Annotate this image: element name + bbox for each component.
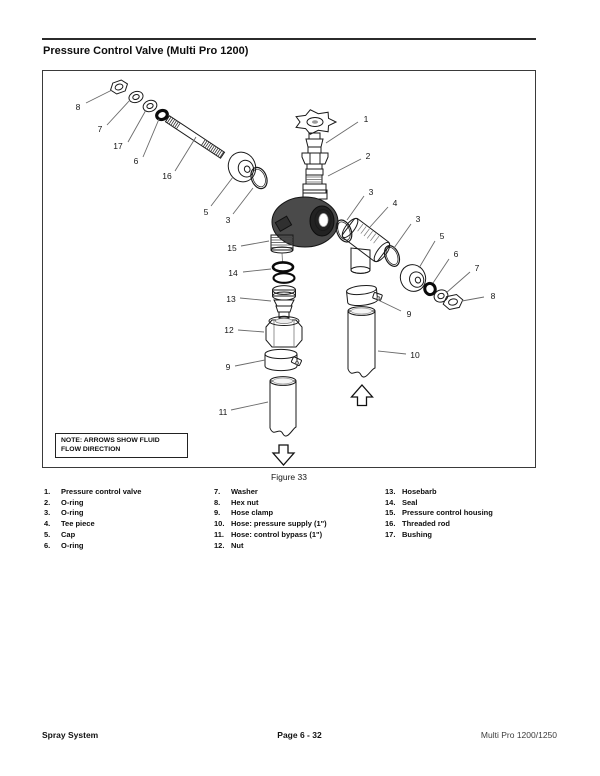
figure-caption: Figure 33 xyxy=(42,472,536,482)
callout-label: 13 xyxy=(226,294,236,304)
callout-label: 6 xyxy=(134,156,139,166)
o-ring-3-left xyxy=(248,165,270,191)
hose-pressure-supply xyxy=(348,307,375,377)
part-item: 10.Hose: pressure supply (1") xyxy=(214,519,327,530)
callout-leader-line xyxy=(211,177,233,206)
valve-coupling xyxy=(302,153,328,193)
callout-label: 6 xyxy=(454,249,459,259)
callout-leader-line xyxy=(446,272,470,293)
part-item: 2.O-ring xyxy=(44,498,141,509)
callout-leader-line xyxy=(175,137,196,171)
callout-leader-line xyxy=(238,330,264,332)
pressure-control-valve xyxy=(296,110,336,153)
tee-branch-end xyxy=(351,267,370,274)
callout-leader-line xyxy=(243,269,271,272)
callout-leader-line xyxy=(86,90,112,103)
bushing xyxy=(142,98,159,113)
callout-label: 7 xyxy=(475,263,480,273)
callout-leader-line xyxy=(433,259,449,283)
callout-label: 1 xyxy=(364,114,369,124)
cap-left xyxy=(224,148,260,186)
part-item: 16.Threaded rod xyxy=(385,519,493,530)
callout-leader-line xyxy=(347,196,364,220)
seal xyxy=(273,262,295,282)
diagram-panel: 87176165315141312911123435678910 NOTE: A… xyxy=(42,70,536,468)
callout-leader-line xyxy=(419,241,435,268)
hosebarb xyxy=(273,286,296,320)
callout-leader-line xyxy=(235,360,265,366)
callout-label: 11 xyxy=(219,407,228,417)
callout-label: 8 xyxy=(491,291,496,301)
callout-leader-line xyxy=(378,300,401,311)
callout-label: 5 xyxy=(440,231,445,241)
callout-label: 2 xyxy=(366,151,371,161)
callout-leader-line xyxy=(241,241,269,246)
part-item: 7.Washer xyxy=(214,487,327,498)
callout-leader-line xyxy=(143,119,159,157)
manual-page: Pressure Control Valve (Multi Pro 1200) xyxy=(0,0,600,776)
callout-leader-line xyxy=(378,351,406,354)
o-ring-6-left xyxy=(155,109,168,121)
tee-branch xyxy=(351,248,370,273)
callout-leader-line xyxy=(328,159,361,176)
part-item: 12.Nut xyxy=(214,541,327,552)
callout-leader-line xyxy=(326,122,358,143)
callout-label: 9 xyxy=(407,309,412,319)
nut xyxy=(266,317,302,348)
callout-leader-line xyxy=(128,110,146,142)
callout-label: 15 xyxy=(227,243,237,253)
callout-leader-line xyxy=(231,402,268,410)
callout-label: 12 xyxy=(224,325,234,335)
part-item: 11.Hose: control bypass (1") xyxy=(214,530,327,541)
part-item: 5.Cap xyxy=(44,530,141,541)
part-item: 6.O-ring xyxy=(44,541,141,552)
callout-leader-line xyxy=(462,297,484,301)
page-title: Pressure Control Valve (Multi Pro 1200) xyxy=(43,45,248,57)
part-item: 14.Seal xyxy=(385,498,493,509)
callout-label: 10 xyxy=(410,350,420,360)
hex-nut-right xyxy=(442,293,464,310)
part-item: 13.Hosebarb xyxy=(385,487,493,498)
part-item: 9.Hose clamp xyxy=(214,508,327,519)
callout-leader-line xyxy=(233,188,253,214)
callout-label: 4 xyxy=(393,198,398,208)
part-item: 8.Hex nut xyxy=(214,498,327,509)
header-rule xyxy=(42,38,536,40)
callout-label: 8 xyxy=(76,102,81,112)
callout-layer: 87176165315141312911123435678910 xyxy=(76,90,496,417)
parts-list-column-3: 13.Hosebarb14.Seal15.Pressure control ho… xyxy=(385,487,493,541)
callout-leader-line xyxy=(107,100,130,125)
callout-label: 16 xyxy=(162,171,172,181)
note-box: NOTE: ARROWS SHOW FLUID FLOW DIRECTION xyxy=(55,433,188,458)
exploded-diagram: 87176165315141312911123435678910 xyxy=(43,71,535,467)
hose-clamp-center xyxy=(265,349,302,370)
callout-leader-line xyxy=(240,298,271,301)
part-item: 17.Bushing xyxy=(385,530,493,541)
washer-left xyxy=(127,89,144,104)
parts-list-column-1: 1.Pressure control valve2.O-ring3.O-ring… xyxy=(44,487,141,551)
part-item: 4.Tee piece xyxy=(44,519,141,530)
callout-leader-line xyxy=(394,224,411,248)
footer-page-number: Page 6 - 32 xyxy=(42,730,557,740)
flow-arrow-down-icon xyxy=(273,445,294,465)
callout-label: 14 xyxy=(228,268,238,278)
o-ring-3-right xyxy=(382,243,403,268)
callout-label: 17 xyxy=(113,141,123,151)
threaded-rod xyxy=(165,116,224,158)
hex-nut-left xyxy=(109,78,130,95)
callout-label: 3 xyxy=(416,214,421,224)
note-line1: NOTE: ARROWS SHOW FLUID xyxy=(61,437,160,444)
footer-model: Multi Pro 1200/1250 xyxy=(481,730,557,740)
callout-label: 3 xyxy=(226,215,231,225)
hose-control-bypass xyxy=(270,377,296,436)
callout-label: 7 xyxy=(98,124,103,134)
callout-label: 3 xyxy=(369,187,374,197)
callout-leader-line xyxy=(370,207,388,227)
part-item: 15.Pressure control housing xyxy=(385,508,493,519)
parts-list-column-2: 7.Washer8.Hex nut9.Hose clamp10.Hose: pr… xyxy=(214,487,327,551)
hose-clamp-right xyxy=(346,284,383,307)
flow-arrow-up-icon xyxy=(352,385,373,406)
part-item: 3.O-ring xyxy=(44,508,141,519)
note-line2: FLOW DIRECTION xyxy=(61,446,120,453)
callout-label: 5 xyxy=(204,207,209,217)
callout-label: 9 xyxy=(226,362,231,372)
part-item: 1.Pressure control valve xyxy=(44,487,141,498)
pressure-control-housing xyxy=(271,190,338,263)
